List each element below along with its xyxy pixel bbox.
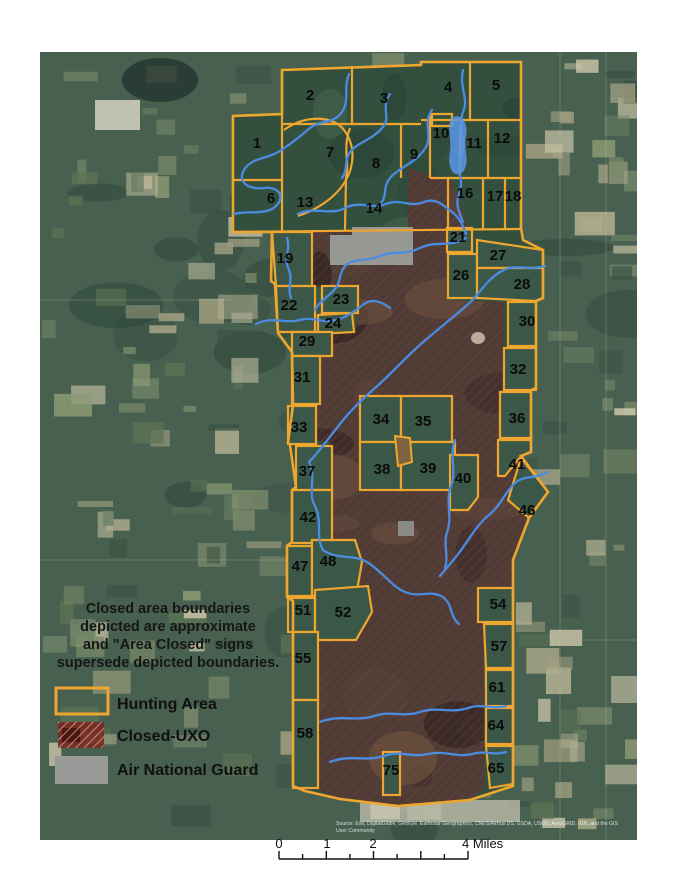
zone-blob-38-39 (395, 436, 412, 466)
land-patch (602, 398, 613, 411)
land-patch (531, 802, 554, 819)
land-patch (158, 156, 176, 175)
zone-label-17: 17 (487, 188, 504, 205)
map-canvas: 1234567891011121314161718192122232426272… (0, 0, 678, 877)
land-patch (52, 227, 63, 238)
scale-label: 0 (275, 836, 282, 851)
land-patch (149, 325, 176, 333)
zone-label-24: 24 (325, 315, 342, 332)
land-patch (207, 547, 220, 564)
land-patch (522, 778, 534, 792)
legend-label-air-national-guard: Air National Guard (117, 762, 258, 779)
bare-spot (471, 332, 485, 344)
disclaimer-line-3: and "Area Closed" signs (83, 637, 253, 653)
land-patch (560, 261, 582, 276)
zone-label-4: 4 (444, 79, 453, 96)
zone-label-12: 12 (494, 130, 511, 147)
land-patch (561, 733, 578, 748)
zone-label-14: 14 (366, 200, 383, 217)
disclaimer-line-4: supersede depicted boundaries. (57, 655, 279, 671)
zone-label-8: 8 (372, 155, 380, 172)
land-patch (172, 507, 212, 514)
zone-label-1: 1 (253, 135, 261, 152)
land-patch (580, 217, 602, 231)
lake-blob (449, 116, 466, 174)
gray-patch-small (398, 521, 414, 536)
zone-label-75: 75 (383, 762, 400, 779)
land-patch (599, 351, 622, 373)
land-patch (546, 657, 573, 670)
land-patch (548, 331, 577, 341)
land-patch (604, 115, 629, 135)
land-patch (156, 120, 175, 135)
land-patch (562, 595, 580, 618)
land-patch (126, 305, 160, 318)
land-patch (123, 347, 135, 354)
land-patch (564, 63, 582, 69)
zone-label-39: 39 (420, 460, 437, 477)
veg-blob (313, 89, 347, 140)
land-patch (54, 394, 92, 417)
land-patch (555, 782, 572, 798)
land-patch (614, 408, 635, 415)
zone-label-3: 3 (380, 90, 388, 107)
land-patch (207, 483, 233, 494)
map-attribution-2: User Community (336, 828, 375, 834)
zone-label-10: 10 (433, 125, 450, 142)
forest-blob (154, 237, 199, 261)
map-attribution: Source: Esri, DigitalGlobe, GeoEye, Eart… (336, 821, 619, 827)
zone-label-16: 16 (457, 185, 474, 202)
land-patch (171, 805, 210, 826)
land-patch (613, 545, 624, 551)
town-patch-nw (95, 100, 140, 130)
land-patch (247, 541, 282, 548)
land-patch (93, 671, 131, 694)
land-patch (64, 586, 84, 604)
disclaimer-line-2: depicted are approximate (80, 619, 256, 635)
land-patch (577, 707, 612, 724)
zone-label-51: 51 (295, 602, 312, 619)
scale-label: 1 (323, 836, 330, 851)
zone-label-22: 22 (281, 297, 298, 314)
land-patch (592, 140, 615, 157)
land-patch (119, 403, 145, 412)
land-patch (543, 422, 567, 435)
zone-label-13: 13 (297, 194, 314, 211)
land-patch (209, 424, 240, 430)
land-patch (611, 235, 640, 241)
land-patch (217, 330, 254, 354)
land-patch (188, 263, 215, 280)
zone-label-64: 64 (488, 717, 505, 734)
zone-label-26: 26 (453, 267, 470, 284)
land-patch (72, 172, 97, 184)
zone-label-42: 42 (300, 509, 317, 526)
zone-label-32: 32 (510, 361, 527, 378)
land-patch (546, 668, 571, 695)
land-patch (190, 190, 221, 214)
legend-label-hunting-area: Hunting Area (117, 696, 217, 713)
land-patch (69, 196, 82, 206)
closed-uxo-swatch-hatch (58, 722, 104, 748)
zone-label-48: 48 (320, 553, 337, 570)
land-patch (586, 540, 605, 556)
zone-label-19: 19 (277, 250, 294, 267)
land-patch (609, 157, 624, 177)
land-patch (232, 490, 268, 509)
land-patch (561, 112, 574, 123)
zone-label-34: 34 (373, 411, 390, 428)
zone-label-6: 6 (267, 190, 275, 207)
land-patch (109, 539, 127, 557)
land-patch (550, 630, 582, 646)
zone-label-33: 33 (291, 419, 308, 436)
land-patch (159, 313, 185, 321)
land-patch (231, 358, 258, 383)
land-patch (143, 108, 157, 115)
land-patch (233, 510, 255, 531)
land-patch (184, 145, 199, 153)
land-patch (516, 602, 532, 624)
land-patch (281, 731, 292, 754)
zone-label-37: 37 (299, 463, 316, 480)
land-patch (245, 273, 256, 283)
land-patch (230, 93, 246, 103)
land-patch (131, 173, 144, 192)
land-patch (606, 71, 635, 78)
zone-label-30: 30 (519, 313, 536, 330)
zone-label-29: 29 (299, 333, 316, 350)
land-patch (183, 406, 196, 412)
zone-label-28: 28 (514, 276, 531, 293)
zone-label-9: 9 (410, 146, 418, 163)
zone-label-58: 58 (297, 725, 314, 742)
land-patch (42, 320, 56, 338)
zone-label-38: 38 (374, 461, 391, 478)
land-patch (612, 266, 633, 279)
land-patch (183, 591, 201, 601)
land-patch (96, 289, 126, 306)
land-patch (165, 363, 185, 376)
zone-label-36: 36 (509, 410, 526, 427)
zone-label-21: 21 (450, 229, 467, 246)
zone-label-65: 65 (488, 760, 505, 777)
land-patch (610, 83, 635, 103)
zone-area-58 (293, 700, 318, 788)
zone-label-46: 46 (519, 502, 536, 519)
zone-label-7: 7 (326, 144, 334, 161)
land-patch (519, 634, 553, 646)
disclaimer-line-1: Closed area boundaries (86, 601, 250, 617)
land-patch (236, 66, 271, 84)
land-patch (564, 347, 594, 363)
zone-label-41: 41 (509, 456, 526, 473)
land-patch (78, 501, 113, 507)
zone-label-57: 57 (491, 638, 508, 655)
land-patch (603, 449, 637, 473)
land-patch (103, 511, 114, 526)
land-patch (560, 454, 590, 477)
scale-label: 2 (369, 836, 376, 851)
scale-label: 4 Miles (462, 836, 504, 851)
zone-label-47: 47 (292, 558, 309, 575)
legend-label-closed-uxo: Closed-UXO (117, 728, 210, 745)
zone-label-5: 5 (492, 77, 500, 94)
land-patch (133, 422, 164, 443)
zone-label-18: 18 (505, 188, 522, 205)
lake-nw (122, 58, 198, 102)
land-patch (538, 699, 550, 722)
land-patch (215, 428, 239, 454)
land-patch (133, 364, 150, 386)
map-page: 1234567891011121314161718192122232426272… (0, 0, 678, 877)
zone-label-31: 31 (294, 369, 311, 386)
zone-label-54: 54 (490, 596, 507, 613)
land-patch (613, 246, 640, 254)
land-patch (218, 295, 258, 319)
land-patch (64, 72, 98, 82)
land-patch (545, 130, 574, 152)
land-patch (559, 710, 580, 732)
zone-label-35: 35 (415, 413, 432, 430)
zone-label-55: 55 (295, 650, 312, 667)
zone-label-11: 11 (466, 135, 482, 152)
air-national-guard-swatch (55, 756, 108, 784)
zone-label-40: 40 (455, 470, 472, 487)
land-patch (43, 636, 67, 653)
zone-label-2: 2 (306, 87, 314, 104)
zone-label-23: 23 (333, 291, 350, 308)
zone-label-27: 27 (490, 247, 507, 264)
zone-label-52: 52 (335, 604, 352, 621)
land-patch (191, 480, 207, 492)
zone-label-61: 61 (489, 679, 506, 696)
land-patch (605, 765, 638, 785)
land-patch (228, 239, 260, 247)
land-patch (107, 585, 137, 597)
land-patch (593, 808, 613, 819)
